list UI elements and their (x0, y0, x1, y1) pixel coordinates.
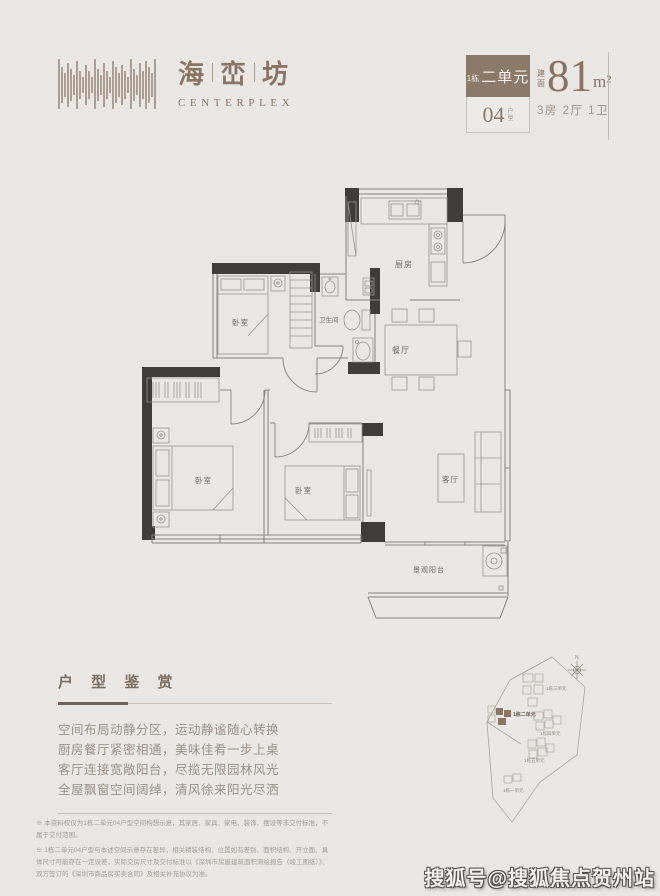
brand-separator (254, 63, 255, 82)
area-value: 81 (547, 57, 592, 95)
feature-line: 空间布局动静分区，运动静谧随心转换 (58, 720, 334, 740)
disclaimer-note: ※ 1栋二单元04户型与本述空间示意存在差异，相关精装结构、位置如有差别、面积结… (36, 845, 334, 881)
bed-icon (218, 276, 285, 354)
type-suffix-char: 型 (507, 116, 513, 123)
title-underline (58, 702, 334, 705)
washbasin-icon (322, 277, 338, 296)
sofa-icon (475, 432, 501, 512)
tv-icon (367, 470, 371, 516)
washing-machine-icon (483, 546, 507, 576)
furniture (147, 198, 507, 590)
wardrobe-icon (147, 378, 219, 402)
door-arcs (231, 221, 505, 457)
type-number: 04 (482, 102, 504, 128)
room-label-living: 客厅 (442, 474, 459, 484)
wardrobe-icon (309, 424, 362, 442)
partition-lines (152, 189, 510, 618)
area-prefix: 建 面 (537, 69, 545, 88)
brand-logo: 海 峦 坊 CENTERPLEX (58, 54, 294, 109)
room-label-bathroom: 卫生间 (319, 315, 339, 324)
building-number: 1栋 (467, 73, 479, 84)
feature-line: 全屋飘窗空间阔绰，清风徐来阳光尽洒 (58, 780, 334, 800)
cabinet-icon (290, 272, 312, 348)
toilet-icon (344, 310, 370, 330)
disclaimer: ※ 本资料权仅为1栋二单元04户型空间构想示意，其家居、家具、家电、装饰、摆设等… (36, 818, 334, 884)
brand-waveform-icon (58, 59, 164, 109)
section-divider (58, 813, 332, 814)
room-labels: 厨房 卫生间 餐厅 卧室 卧室 卧室 客厅 景观阳台 (195, 259, 459, 574)
room-label-dining: 餐厅 (392, 346, 410, 355)
room-label-bedroom: 卧室 (195, 475, 212, 485)
siteplan: N 1栋三单元 1栋二单元 1栋四单元 1栋五单元 1栋一单元 (476, 648, 648, 853)
site-label-unit4: 1栋四单元 (540, 730, 561, 737)
room-label-kitchen: 厨房 (395, 259, 413, 269)
unit-badge-bottom: 04 户 型 (466, 97, 530, 133)
unit-name: 二单元 (481, 66, 529, 87)
flyer-page: 海 峦 坊 CENTERPLEX 1栋 二单元 04 户 型 建 (0, 0, 660, 896)
brand-subtitle: CENTERPLEX (178, 97, 294, 109)
floorplan: 厨房 卫生间 餐厅 卧室 卧室 卧室 客厅 景观阳台 (95, 178, 515, 645)
room-label-bedroom: 卧室 (232, 317, 249, 327)
stove-icon (429, 224, 447, 286)
type-suffix: 户 型 (507, 109, 513, 123)
unit-badge: 1栋 二单元 04 户 型 (466, 55, 530, 133)
shower-icon (353, 338, 373, 362)
brand-char: 坊 (262, 54, 289, 91)
disclaimer-note: ※ 本资料权仅为1栋二单元04户型空间构想示意，其家居、家具、家电、装饰、摆设等… (36, 818, 334, 842)
header-divider (608, 52, 609, 140)
feature-line: 厨房餐厅紧密相通，美味佳肴一步上桌 (58, 740, 334, 760)
site-labels: 1栋三单元 1栋二单元 1栋四单元 1栋五单元 1栋一单元 (503, 685, 567, 794)
brand-char: 海 (178, 54, 205, 91)
highlighted-unit-buildings (496, 708, 511, 725)
compass-icon: N (568, 655, 586, 679)
unit-badge-top: 1栋 二单元 (466, 55, 530, 97)
room-label-balcony: 景观阳台 (413, 565, 445, 574)
brand-separator (212, 63, 213, 82)
room-label-bedroom: 卧室 (295, 485, 312, 495)
brand-name: 海 峦 坊 (178, 54, 294, 91)
bed-icon (153, 428, 233, 527)
site-label-unit3: 1栋三单元 (546, 685, 567, 692)
compass-north-label: N (575, 655, 579, 661)
site-label-unit2: 1栋二单元 (513, 711, 536, 718)
area-info: 建 面 81 m² 3房 2厅 1卫 (537, 57, 611, 118)
kitchen-sink-icon (361, 198, 447, 224)
brand-char: 峦 (220, 54, 247, 91)
drain-icon (499, 586, 503, 590)
section-title: 户 型 鉴 赏 (58, 671, 334, 692)
site-label-unit1: 1栋一单元 (503, 787, 524, 794)
site-label-unit5: 1栋五单元 (524, 757, 545, 764)
room-layout: 3房 2厅 1卫 (537, 102, 611, 118)
type-suffix-char: 户 (507, 109, 513, 116)
area-prefix-char: 建 (537, 69, 545, 79)
feature-line: 客厅连接宽敞阳台，尽揽无限园林风光 (58, 760, 334, 780)
appreciation-section: 户 型 鉴 赏 空间布局动静分区，运动静谧随心转换 厨房餐厅紧密相通，美味佳肴一… (58, 671, 334, 814)
watermark: 搜狐号@搜狐焦点贺州站 (424, 862, 655, 891)
area-prefix-char: 面 (537, 79, 545, 89)
